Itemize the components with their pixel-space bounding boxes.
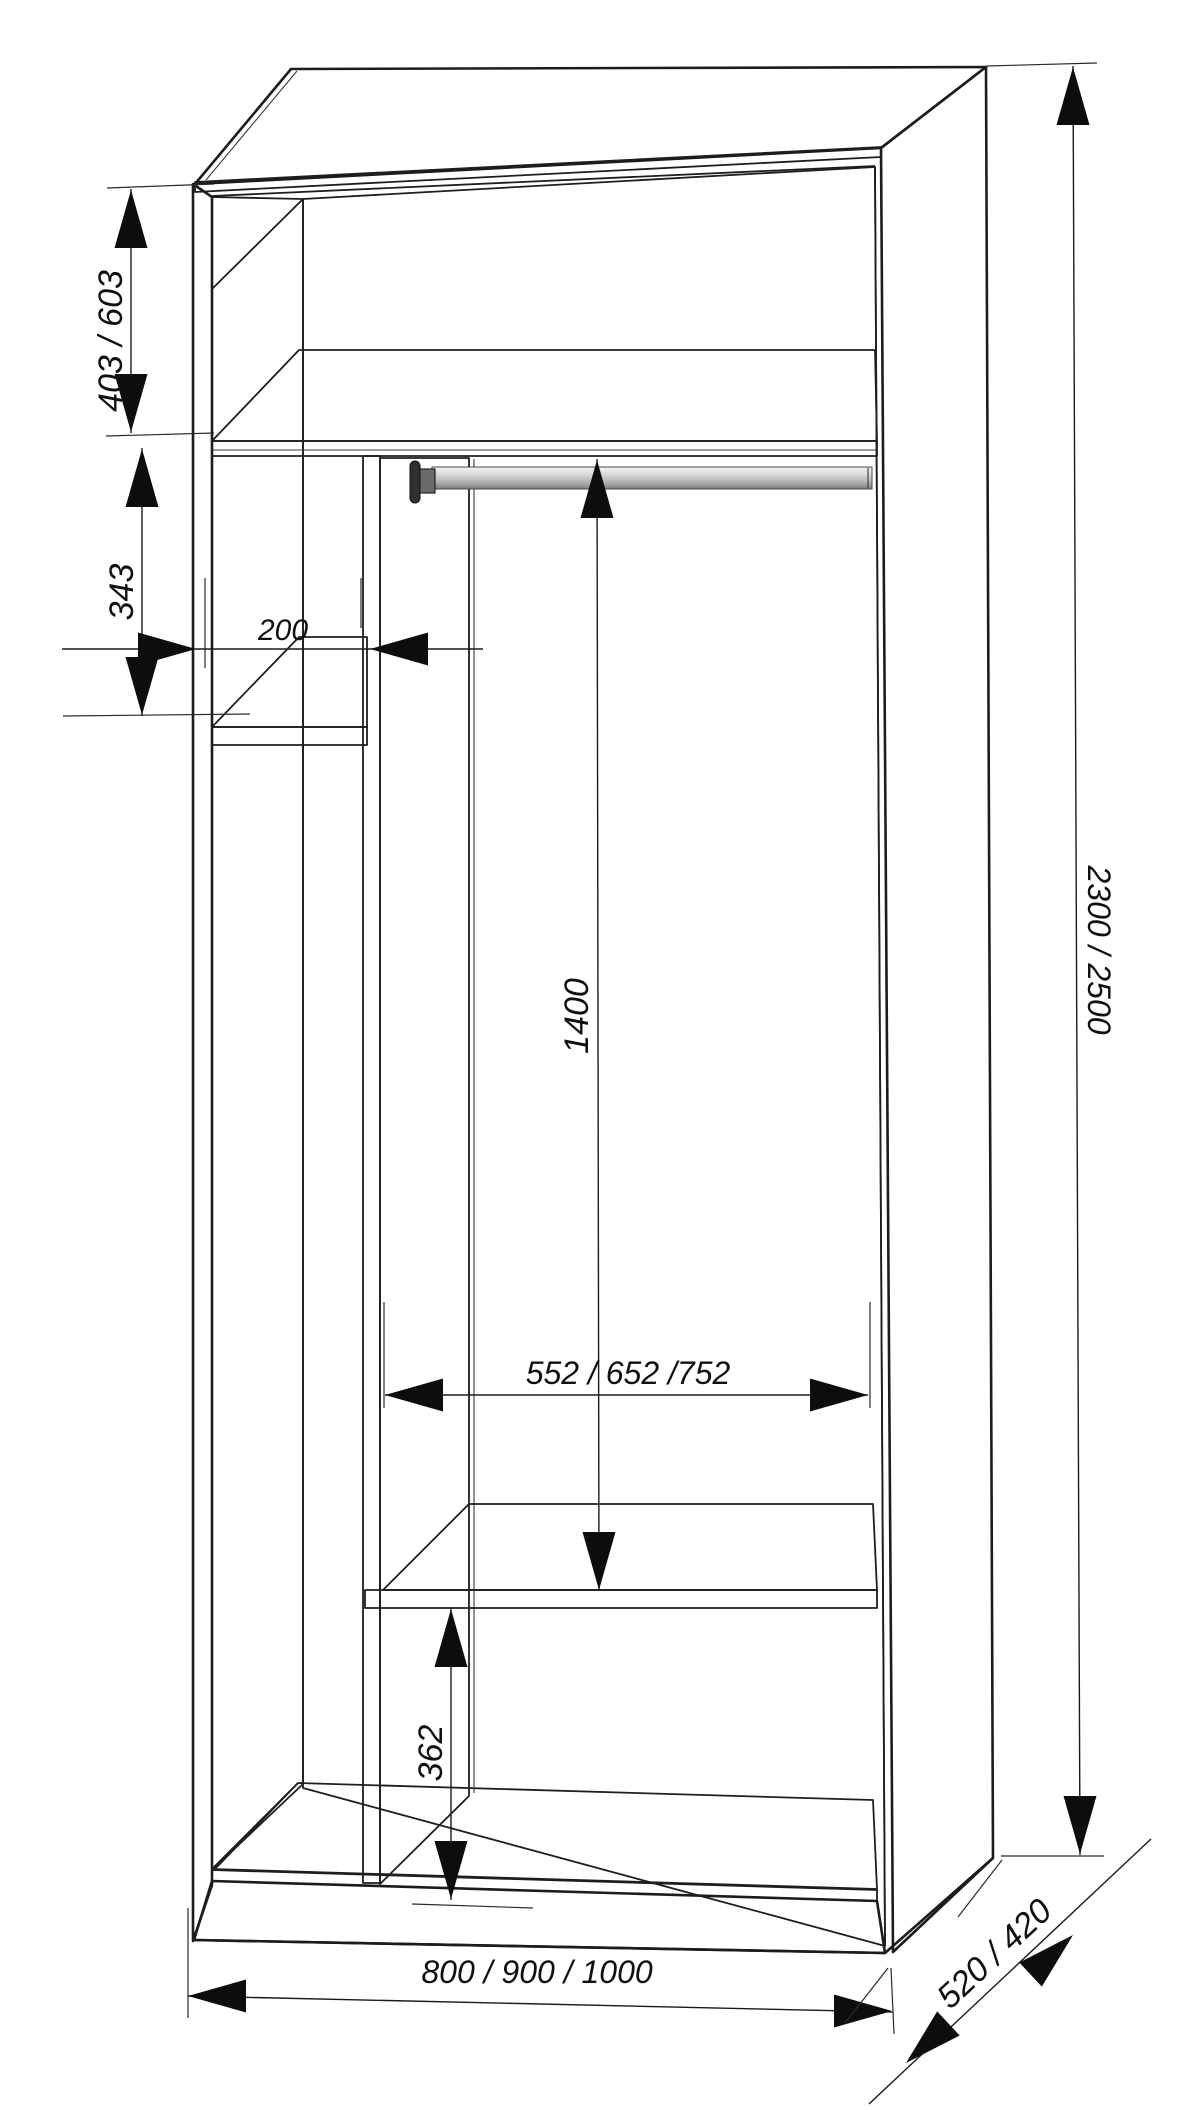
dim-label-overall-width: 800 / 900 / 1000 — [421, 1954, 653, 1990]
small-shelf-top — [212, 637, 367, 727]
rod-bracket-flange — [410, 461, 420, 503]
interior-top-line — [212, 166, 875, 196]
top-panel-left-edge-line — [206, 71, 297, 180]
top-shelf-top — [212, 350, 877, 441]
dim-label-overall-height: 2300 / 2500 — [1081, 864, 1117, 1034]
dim-hanging-space-height: 1400 — [558, 459, 616, 1591]
dim-label-side-column-width: 200 — [257, 614, 308, 647]
dim-overall-height: 2300 / 2500 — [987, 63, 1117, 1856]
dim-label-bottom-compartment-height: 362 — [412, 1725, 450, 1782]
lower-shelf-edge — [365, 1590, 877, 1608]
wardrobe-dimension-diagram: 403 / 603 343 200 1400 552 / 652 /752 — [0, 0, 1200, 2110]
floor-left-corner-line — [215, 1783, 298, 1869]
dim-main-compartment-width: 552 / 652 /752 — [384, 1302, 870, 1412]
rod-tube — [432, 467, 872, 489]
hanging-rod — [410, 461, 872, 503]
back-wall — [303, 167, 885, 1946]
lower-shelf-top — [383, 1504, 877, 1590]
left-side-panel — [193, 184, 212, 1941]
bottom-depth-edge — [885, 1858, 993, 1953]
dim-upper-shelf-height: 403 / 603 — [92, 184, 214, 436]
dim-overall-width: 800 / 900 / 1000 — [188, 1908, 894, 2034]
top-shelf-edge — [212, 441, 877, 456]
dim-label-left-shelf-gap: 343 — [103, 564, 141, 621]
divider-side-face — [380, 458, 469, 1884]
dim-left-shelf-gap: 343 — [63, 448, 250, 716]
bottom-outline — [194, 1940, 885, 1953]
divider-front-edge — [363, 456, 380, 1883]
dim-label-main-compartment-width: 552 / 652 /752 — [526, 1355, 731, 1391]
dim-label-upper-shelf-height: 403 / 603 — [92, 270, 130, 412]
left-top-corner-line — [212, 200, 302, 289]
left-side-interior — [212, 197, 303, 1870]
dim-bottom-compartment-height: 362 — [412, 1608, 533, 1908]
right-side-panel — [881, 67, 993, 1952]
small-shelf-edge — [212, 727, 367, 745]
dim-label-hanging-space-height: 1400 — [558, 978, 596, 1054]
diagram-canvas: 403 / 603 343 200 1400 552 / 652 /752 — [0, 0, 1200, 2110]
